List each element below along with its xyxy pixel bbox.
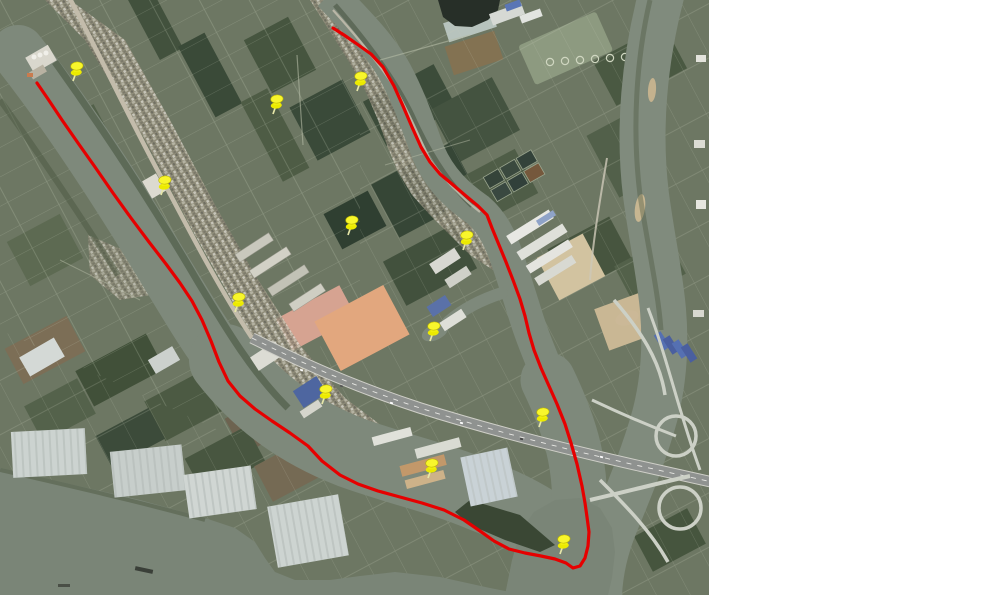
satellite-map-svg [0, 0, 709, 595]
page-canvas [0, 0, 1000, 595]
satellite-map-image [0, 0, 709, 595]
